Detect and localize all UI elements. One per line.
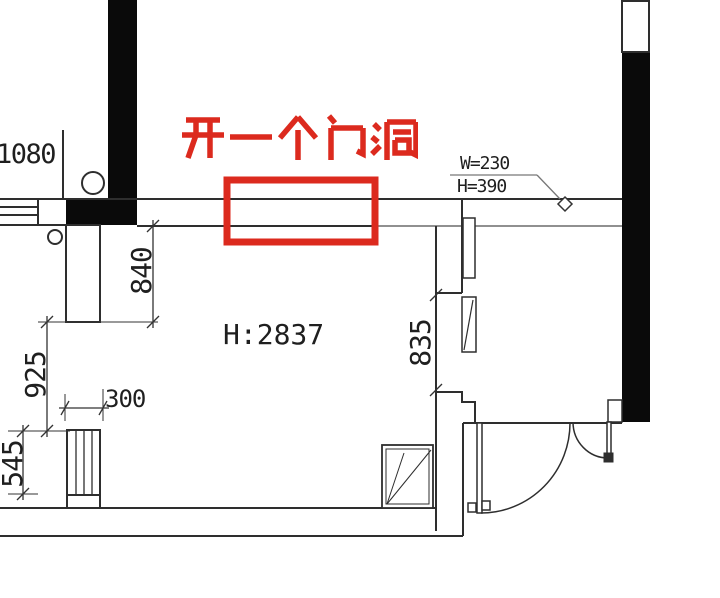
dim-label-300: 300 <box>105 387 145 411</box>
dim-label-925: 925 <box>22 351 50 399</box>
door-height-label: H=390 <box>457 178 506 196</box>
floor-plan-canvas <box>0 0 720 598</box>
door-swing-arc-main <box>481 422 570 513</box>
wall-panel-upper <box>463 218 475 278</box>
dim-label-840: 840 <box>128 247 156 295</box>
annotation-note: 开一个门洞 <box>178 110 418 164</box>
fixture-box <box>382 445 433 508</box>
wall-stub <box>66 225 100 322</box>
wall-panel-lower <box>462 297 476 352</box>
dim-label-835: 835 <box>407 319 435 367</box>
dim-label-1080: 1080 <box>0 141 55 168</box>
door-leaf-main <box>468 423 490 513</box>
wall-right-column <box>608 1 650 422</box>
wall-bottom <box>0 508 463 536</box>
dim-label-545: 545 <box>0 440 27 488</box>
door-swing-arc-small <box>573 422 608 458</box>
radiator <box>67 430 100 508</box>
floor-plan: 开一个门洞 1080 W=230 H=390 H:2837 300 840 92… <box>0 0 720 598</box>
highlight-box <box>227 180 375 242</box>
circle-marker-small <box>48 230 62 244</box>
room-height-label: H:2837 <box>223 321 324 349</box>
door-leaf-small <box>604 422 613 462</box>
door-width-label: W=230 <box>460 155 509 173</box>
circle-marker-large <box>82 172 104 194</box>
